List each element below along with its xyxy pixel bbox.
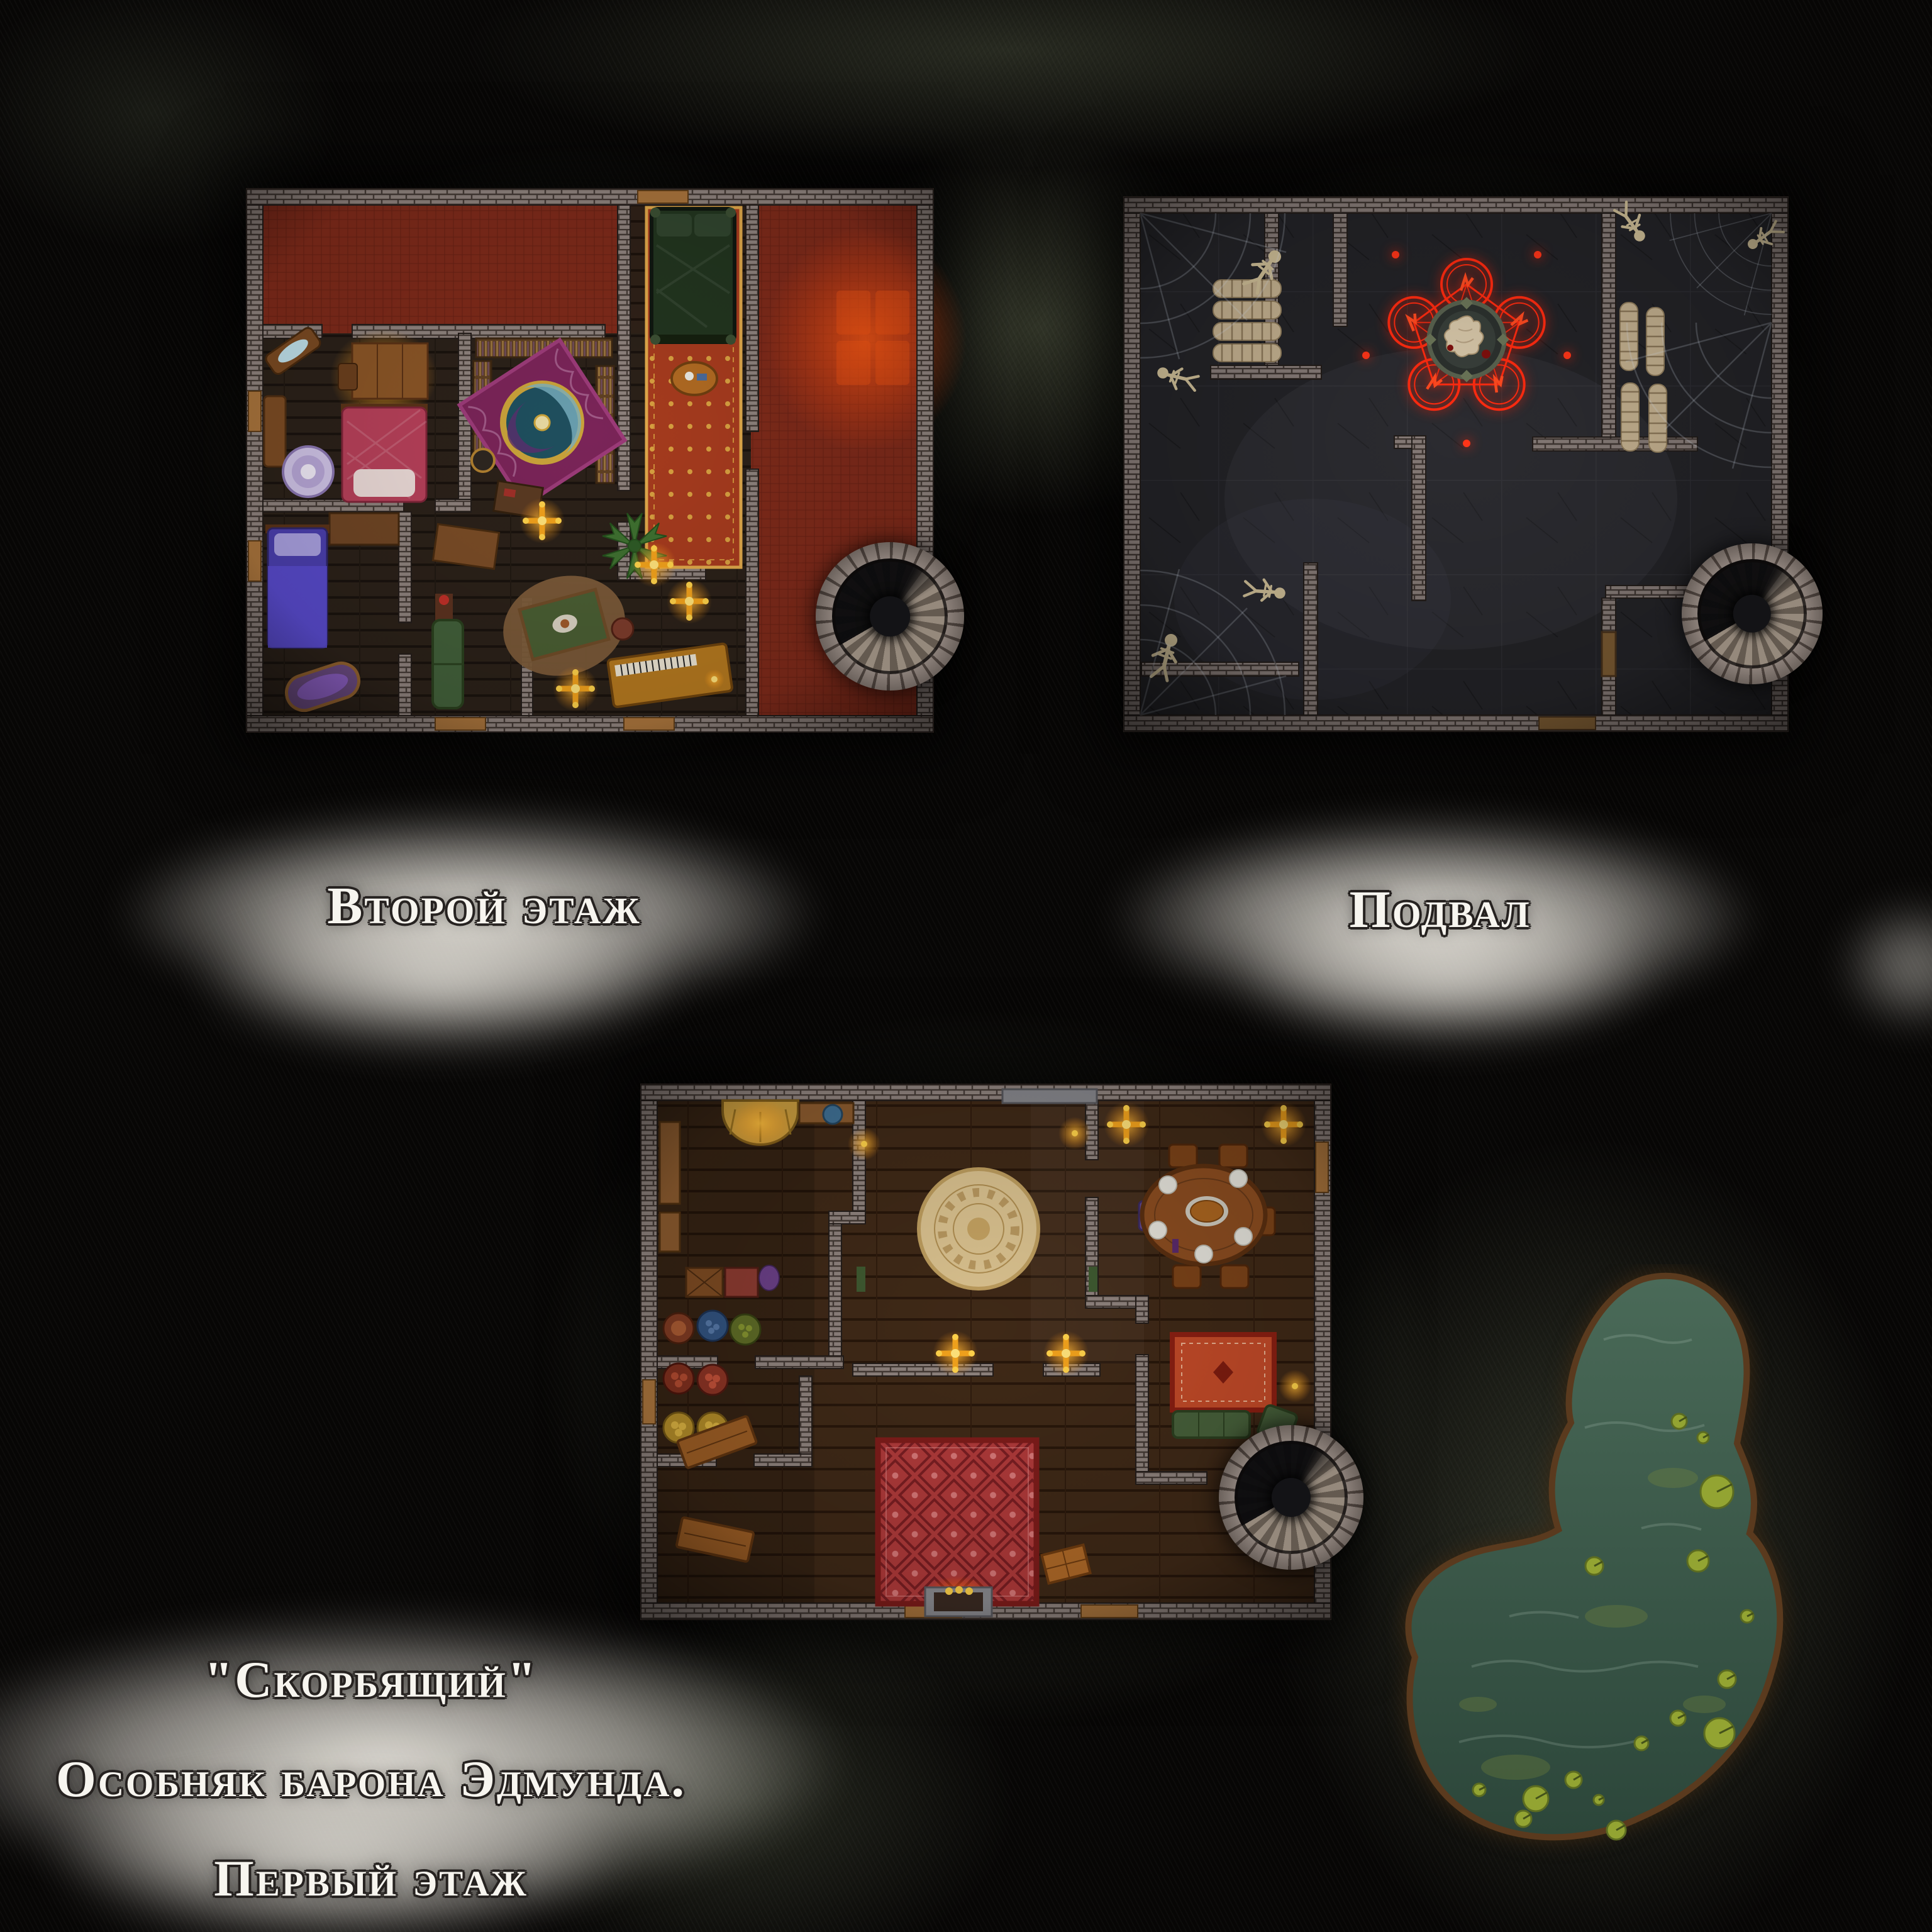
spiral-staircase <box>816 542 964 691</box>
lily-pad-icon <box>1607 1821 1626 1840</box>
basement-label: Подвал <box>1126 879 1755 940</box>
map-title-line2: Особняк барона Эдмунда. <box>0 1729 742 1829</box>
lily-pad-icon <box>1585 1557 1603 1575</box>
map-vignette <box>641 1084 1331 1619</box>
first-floor-plan <box>641 1084 1331 1619</box>
lily-pad-icon <box>1594 1795 1604 1805</box>
spiral-staircase <box>1219 1425 1363 1570</box>
staircase-center <box>870 596 910 636</box>
map-title-line3: Первый этаж <box>0 1829 742 1928</box>
lily-pad-icon <box>1701 1475 1733 1508</box>
basement-map <box>1124 197 1788 731</box>
lily-pad-icon <box>1741 1610 1753 1623</box>
lily-pad-icon <box>1718 1670 1736 1688</box>
lily-pad-icon <box>1515 1811 1531 1827</box>
map-vignette <box>1124 197 1788 731</box>
map-title-line1: "Скорбящий" <box>0 1630 742 1729</box>
second-floor-label: Второй этаж <box>151 875 818 936</box>
lily-pad-icon <box>1473 1784 1485 1796</box>
lily-pad-icon <box>1565 1772 1582 1788</box>
map-title: "Скорбящий" Особняк барона Эдмунда. Перв… <box>0 1630 742 1928</box>
pond <box>1377 1264 1818 1868</box>
staircase-center <box>1272 1478 1311 1517</box>
lily-pad-icon <box>1523 1786 1548 1811</box>
lily-pad-icon <box>1672 1414 1687 1429</box>
lily-pad-icon <box>1687 1550 1709 1572</box>
lily-pad-icon <box>1704 1718 1735 1748</box>
lily-pad-icon <box>1670 1711 1685 1726</box>
lily-pad-icon <box>1635 1736 1648 1750</box>
lily-pad-icon <box>1697 1432 1709 1443</box>
spiral-staircase <box>1682 543 1823 684</box>
battle-map-canvas: Второй этаж Подвал "Скорбящий" Особняк б… <box>0 0 1932 1932</box>
basement-plan <box>1124 197 1788 731</box>
first-floor-map <box>641 1084 1331 1619</box>
